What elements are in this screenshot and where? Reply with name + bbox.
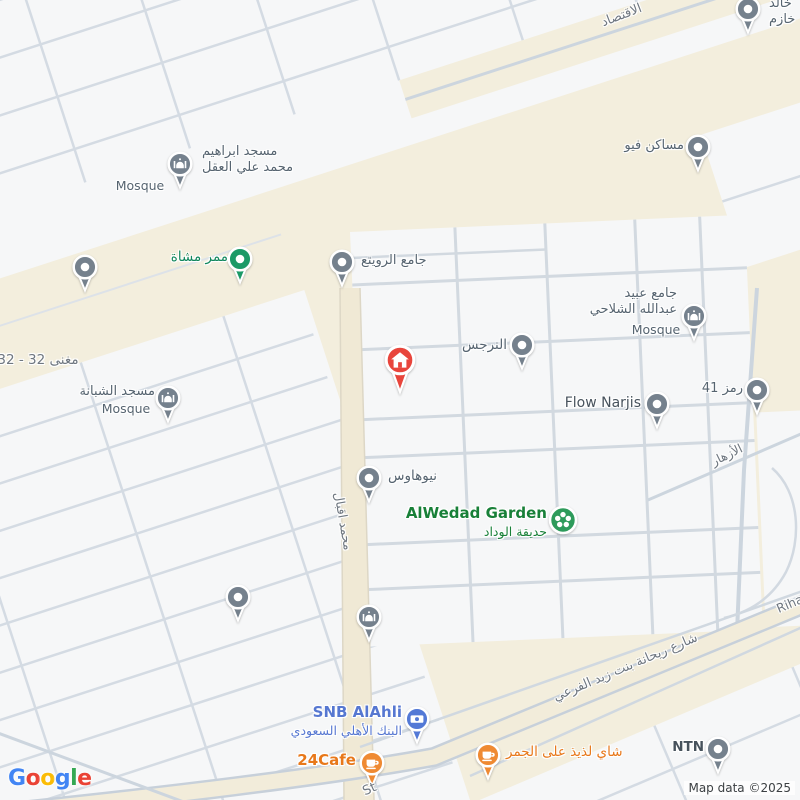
poi-pin-flow-narjis[interactable] (643, 390, 671, 430)
google-logo[interactable]: Google (8, 766, 92, 791)
garden-icon-alwedad[interactable] (548, 505, 578, 535)
mosque-icon (680, 302, 708, 342)
poi-pin-newhouse[interactable] (355, 464, 383, 504)
google-logo-letter: o (40, 766, 55, 791)
label-ramz41[interactable]: رمز 41 (702, 382, 743, 397)
label-khaled-line1[interactable]: خالد (769, 0, 792, 12)
dot-icon (704, 735, 732, 775)
mosque-pin-unnamed[interactable] (355, 603, 383, 643)
label-snb-ar[interactable]: البنك الأهلي السعودي (291, 724, 402, 738)
label-shalahi-sub[interactable]: Mosque (632, 323, 681, 337)
poi-pin-khaled-khazem[interactable] (734, 0, 762, 35)
label-khaled-line2[interactable]: خازم (769, 13, 795, 28)
label-snb-en[interactable]: SNB AlAhli (313, 704, 402, 721)
poi-pin-alruwaita[interactable] (328, 248, 356, 288)
pedestrian-path-pin[interactable] (226, 245, 254, 285)
label-maghna: مغنى 32 - 32 (0, 353, 79, 369)
map-tiles (0, 0, 800, 800)
flower-icon (548, 505, 578, 535)
label-mosque-ibrahim-line2[interactable]: محمد علي العقل (202, 161, 293, 176)
mosque-icon (355, 603, 383, 643)
map-data-copyright: Map data ©2025 (684, 781, 795, 795)
dot-icon (643, 390, 671, 430)
label-24cafe[interactable]: 24Cafe (297, 752, 356, 769)
poi-pin-ramz41[interactable] (743, 376, 771, 416)
label-shalahi-line2[interactable]: عبدالله الشلاحي (590, 303, 677, 318)
label-mosque-ibrahim-sub[interactable]: Mosque (116, 179, 165, 193)
mosque-pin-obaid-alshalahi[interactable] (680, 302, 708, 342)
dot-icon (743, 376, 771, 416)
poi-pin-masaken-view[interactable] (684, 133, 712, 173)
label-tea-charcoal[interactable]: شاي لذيذ على الجمر (506, 745, 623, 761)
mosque-icon (166, 150, 194, 190)
label-mosque-ibrahim-line1[interactable]: مسجد ابراهيم (202, 145, 277, 160)
mosque-pin-alshabanah[interactable] (154, 384, 182, 424)
dot-icon (508, 331, 536, 371)
google-logo-letter: g (55, 766, 70, 791)
home-location-pin[interactable] (382, 343, 418, 395)
bank-pin-snb[interactable] (403, 705, 431, 745)
dot-icon (684, 133, 712, 173)
label-ntn[interactable]: NTN (672, 740, 704, 756)
label-shalahi-line1[interactable]: جامع عبيد (625, 287, 677, 302)
banknote-icon (403, 705, 431, 745)
dot-icon (224, 583, 252, 623)
google-logo-letter: o (26, 766, 41, 791)
mosque-icon (154, 384, 182, 424)
map-canvas[interactable]: مسجد ابراهيممحمد علي العقلMosqueممر مشاة… (0, 0, 800, 800)
label-alnarjis[interactable]: النرجس (462, 338, 507, 354)
label-alwedad-ar[interactable]: حديقة الوداد (484, 525, 547, 539)
label-masaken-view[interactable]: مساكن فيو (624, 139, 684, 154)
dot-icon (734, 0, 762, 35)
label-alshabanah-line1[interactable]: مسجد الشبانة (79, 385, 155, 400)
mosque-pin-ibrahim-alaqel[interactable] (166, 150, 194, 190)
poi-pin-alnarjis[interactable] (508, 331, 536, 371)
poi-pin-ntn[interactable] (704, 735, 732, 775)
dot-icon (328, 248, 356, 288)
label-newhouse[interactable]: نيوهاوس (388, 469, 437, 485)
home-icon (382, 343, 418, 395)
cafe-pin-tea-charcoal[interactable] (474, 741, 502, 781)
coffee-cup-icon (474, 741, 502, 781)
label-jame-alruwaita[interactable]: جامع الرويتع (361, 254, 427, 269)
label-flow-narjis[interactable]: Flow Narjis (565, 395, 641, 411)
poi-pin-unnamed-2[interactable] (224, 583, 252, 623)
google-logo-letter: G (8, 766, 26, 791)
dot-icon (71, 253, 99, 293)
google-logo-letter: e (77, 766, 91, 791)
label-alshabanah-sub[interactable]: Mosque (102, 402, 151, 416)
poi-pin-unnamed-1[interactable] (71, 253, 99, 293)
label-pedestrian-path[interactable]: ممر مشاة (171, 250, 228, 266)
label-alwedad-en[interactable]: AlWedad Garden (406, 505, 547, 522)
dot-icon (226, 245, 254, 285)
dot-icon (355, 464, 383, 504)
